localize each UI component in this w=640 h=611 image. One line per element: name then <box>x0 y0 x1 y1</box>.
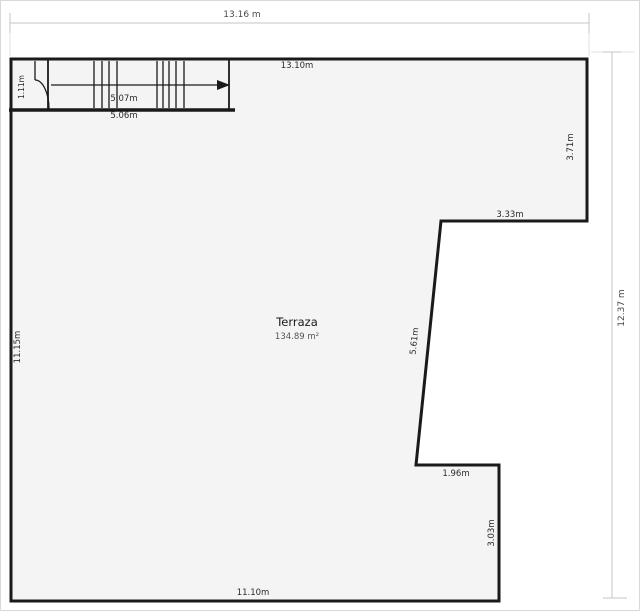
room-area-label: 134.89 m² <box>275 332 319 342</box>
top-dimension-label: 13.16 m <box>223 10 260 20</box>
door-alcove-dimension-label: 1.11m <box>17 75 26 99</box>
room-name-label: Terraza <box>275 315 318 329</box>
floorplan-canvas: 13.16 m 12.37 m <box>0 0 640 611</box>
top-inner-dimension-label: 13.10m <box>281 61 314 71</box>
stair-inner-dimension-label: 5.07m <box>110 94 137 104</box>
notch-top-wall-dimension-label: 3.33m <box>496 210 523 220</box>
terrace-outline <box>11 59 587 601</box>
right-dimension-label: 12.37 m <box>617 289 627 326</box>
left-wall-dimension-label: 11.15m <box>13 331 23 364</box>
floorplan-svg: 13.16 m 12.37 m <box>1 1 639 610</box>
right-upper-wall-dimension-label: 3.71m <box>566 133 576 160</box>
right-dimension: 12.37 m <box>591 52 635 598</box>
step-right-wall-dimension-label: 3.03m <box>487 519 497 546</box>
stair-outer-dimension-label: 5.06m <box>110 111 137 121</box>
step-bottom-wall-dimension-label: 1.96m <box>442 469 469 479</box>
top-dimension: 13.16 m <box>10 10 589 56</box>
bottom-wall-dimension-label: 11.10m <box>237 588 270 598</box>
room-label-group: Terraza 134.89 m² <box>275 315 319 342</box>
